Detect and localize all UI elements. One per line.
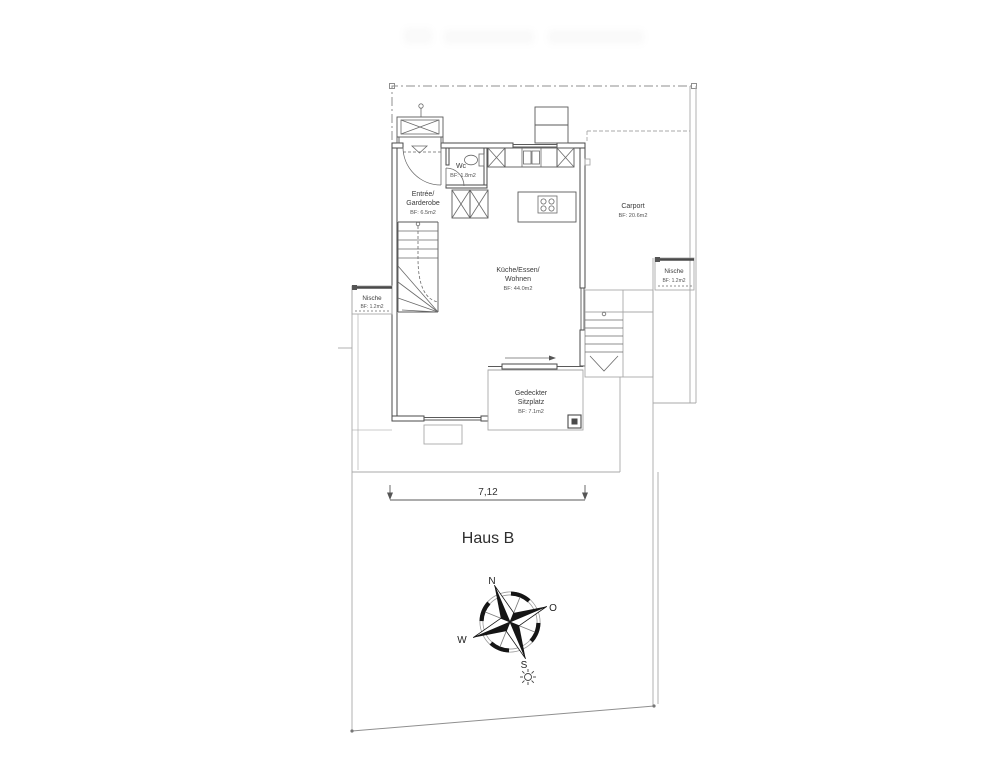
room-label-nische-left: Nische: [362, 295, 382, 302]
interior-stair: [398, 222, 438, 312]
room-wc: Wc BF: 1.8m2: [446, 148, 487, 188]
room-label-nische-right: Nische: [664, 268, 684, 275]
compass-rose-icon: N O W S: [457, 570, 562, 685]
window-well: [424, 425, 462, 444]
room-label-sitzplatz-2: Sitzplatz: [518, 399, 545, 406]
room-label-entree-2: Garderobe: [406, 200, 440, 207]
sink-icon: [524, 151, 540, 164]
entrance-porch: [397, 104, 443, 185]
plan-title: Haus B: [462, 530, 514, 547]
room-sitzplatz: Gedeckter Sitzplatz BF: 7.1m2: [488, 370, 583, 430]
room-area-kueche: BF: 44.0m2: [504, 286, 533, 292]
room-area-entree: BF: 6.5m2: [410, 210, 436, 216]
window-bottom: [424, 418, 481, 421]
room-label-entree-1: Entrée/: [412, 191, 435, 198]
room-labels: Entrée/ Garderobe BF: 6.5m2 Küche/Essen/…: [406, 191, 647, 292]
chimney: [535, 107, 568, 143]
room-area-carport: BF: 20.6m2: [619, 213, 648, 219]
cooktop-icon: [538, 196, 557, 213]
window-top: [513, 145, 557, 148]
dim-arrow-left-icon: [387, 493, 393, 501]
room-nische-left: Nische BF: 1.2m2: [352, 285, 392, 314]
room-area-nische-left: BF: 1.2m2: [360, 304, 383, 310]
room-label-kueche-1: Küche/Essen/: [496, 267, 539, 274]
cupboards: [452, 190, 488, 218]
room-area-nische-right: BF: 1.2m2: [662, 278, 685, 284]
window-right: [581, 288, 584, 330]
compass-south-label: S: [521, 660, 528, 671]
dimension-line: 7,12: [387, 485, 588, 500]
compass-west-label: W: [457, 635, 467, 646]
stair-direction-icon: [590, 356, 618, 371]
slide-arrow-icon: [549, 356, 556, 361]
sliding-door: [488, 356, 583, 371]
room-label-kueche-2: Wohnen: [505, 276, 531, 283]
downpipe: [585, 159, 590, 165]
faint-watermark: [404, 28, 644, 44]
kitchen-island: [518, 192, 576, 222]
compass-east-label: O: [549, 603, 557, 614]
dimension-label: 7,12: [478, 487, 498, 498]
dim-arrow-right-icon: [582, 493, 588, 501]
room-label-carport: Carport: [621, 203, 644, 210]
room-nische-right: Nische BF: 1.2m2: [655, 257, 694, 290]
room-area-sitzplatz: BF: 7.1m2: [518, 409, 544, 415]
sun-icon: [520, 669, 536, 685]
compass-north-label: N: [488, 576, 495, 587]
toilet-icon: [465, 154, 485, 166]
room-area-wc: BF: 1.8m2: [450, 173, 476, 179]
room-label-sitzplatz-1: Gedeckter: [515, 390, 548, 397]
room-label-wc: Wc: [456, 163, 467, 170]
exterior-stair: [585, 290, 653, 377]
floorplan-page: Wc BF: 1.8m2: [0, 0, 1000, 767]
floorplan-drawing: Wc BF: 1.8m2: [0, 0, 1000, 767]
kitchen-counter: [488, 148, 574, 167]
